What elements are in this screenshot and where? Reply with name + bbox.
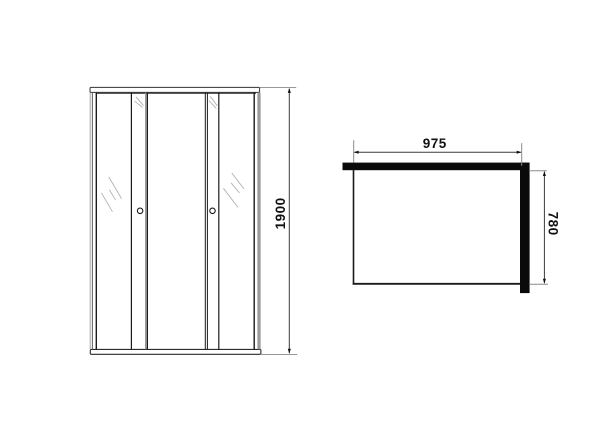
svg-text:975: 975: [423, 136, 447, 151]
svg-text:780: 780: [545, 212, 560, 236]
svg-text:1900: 1900: [273, 197, 288, 229]
